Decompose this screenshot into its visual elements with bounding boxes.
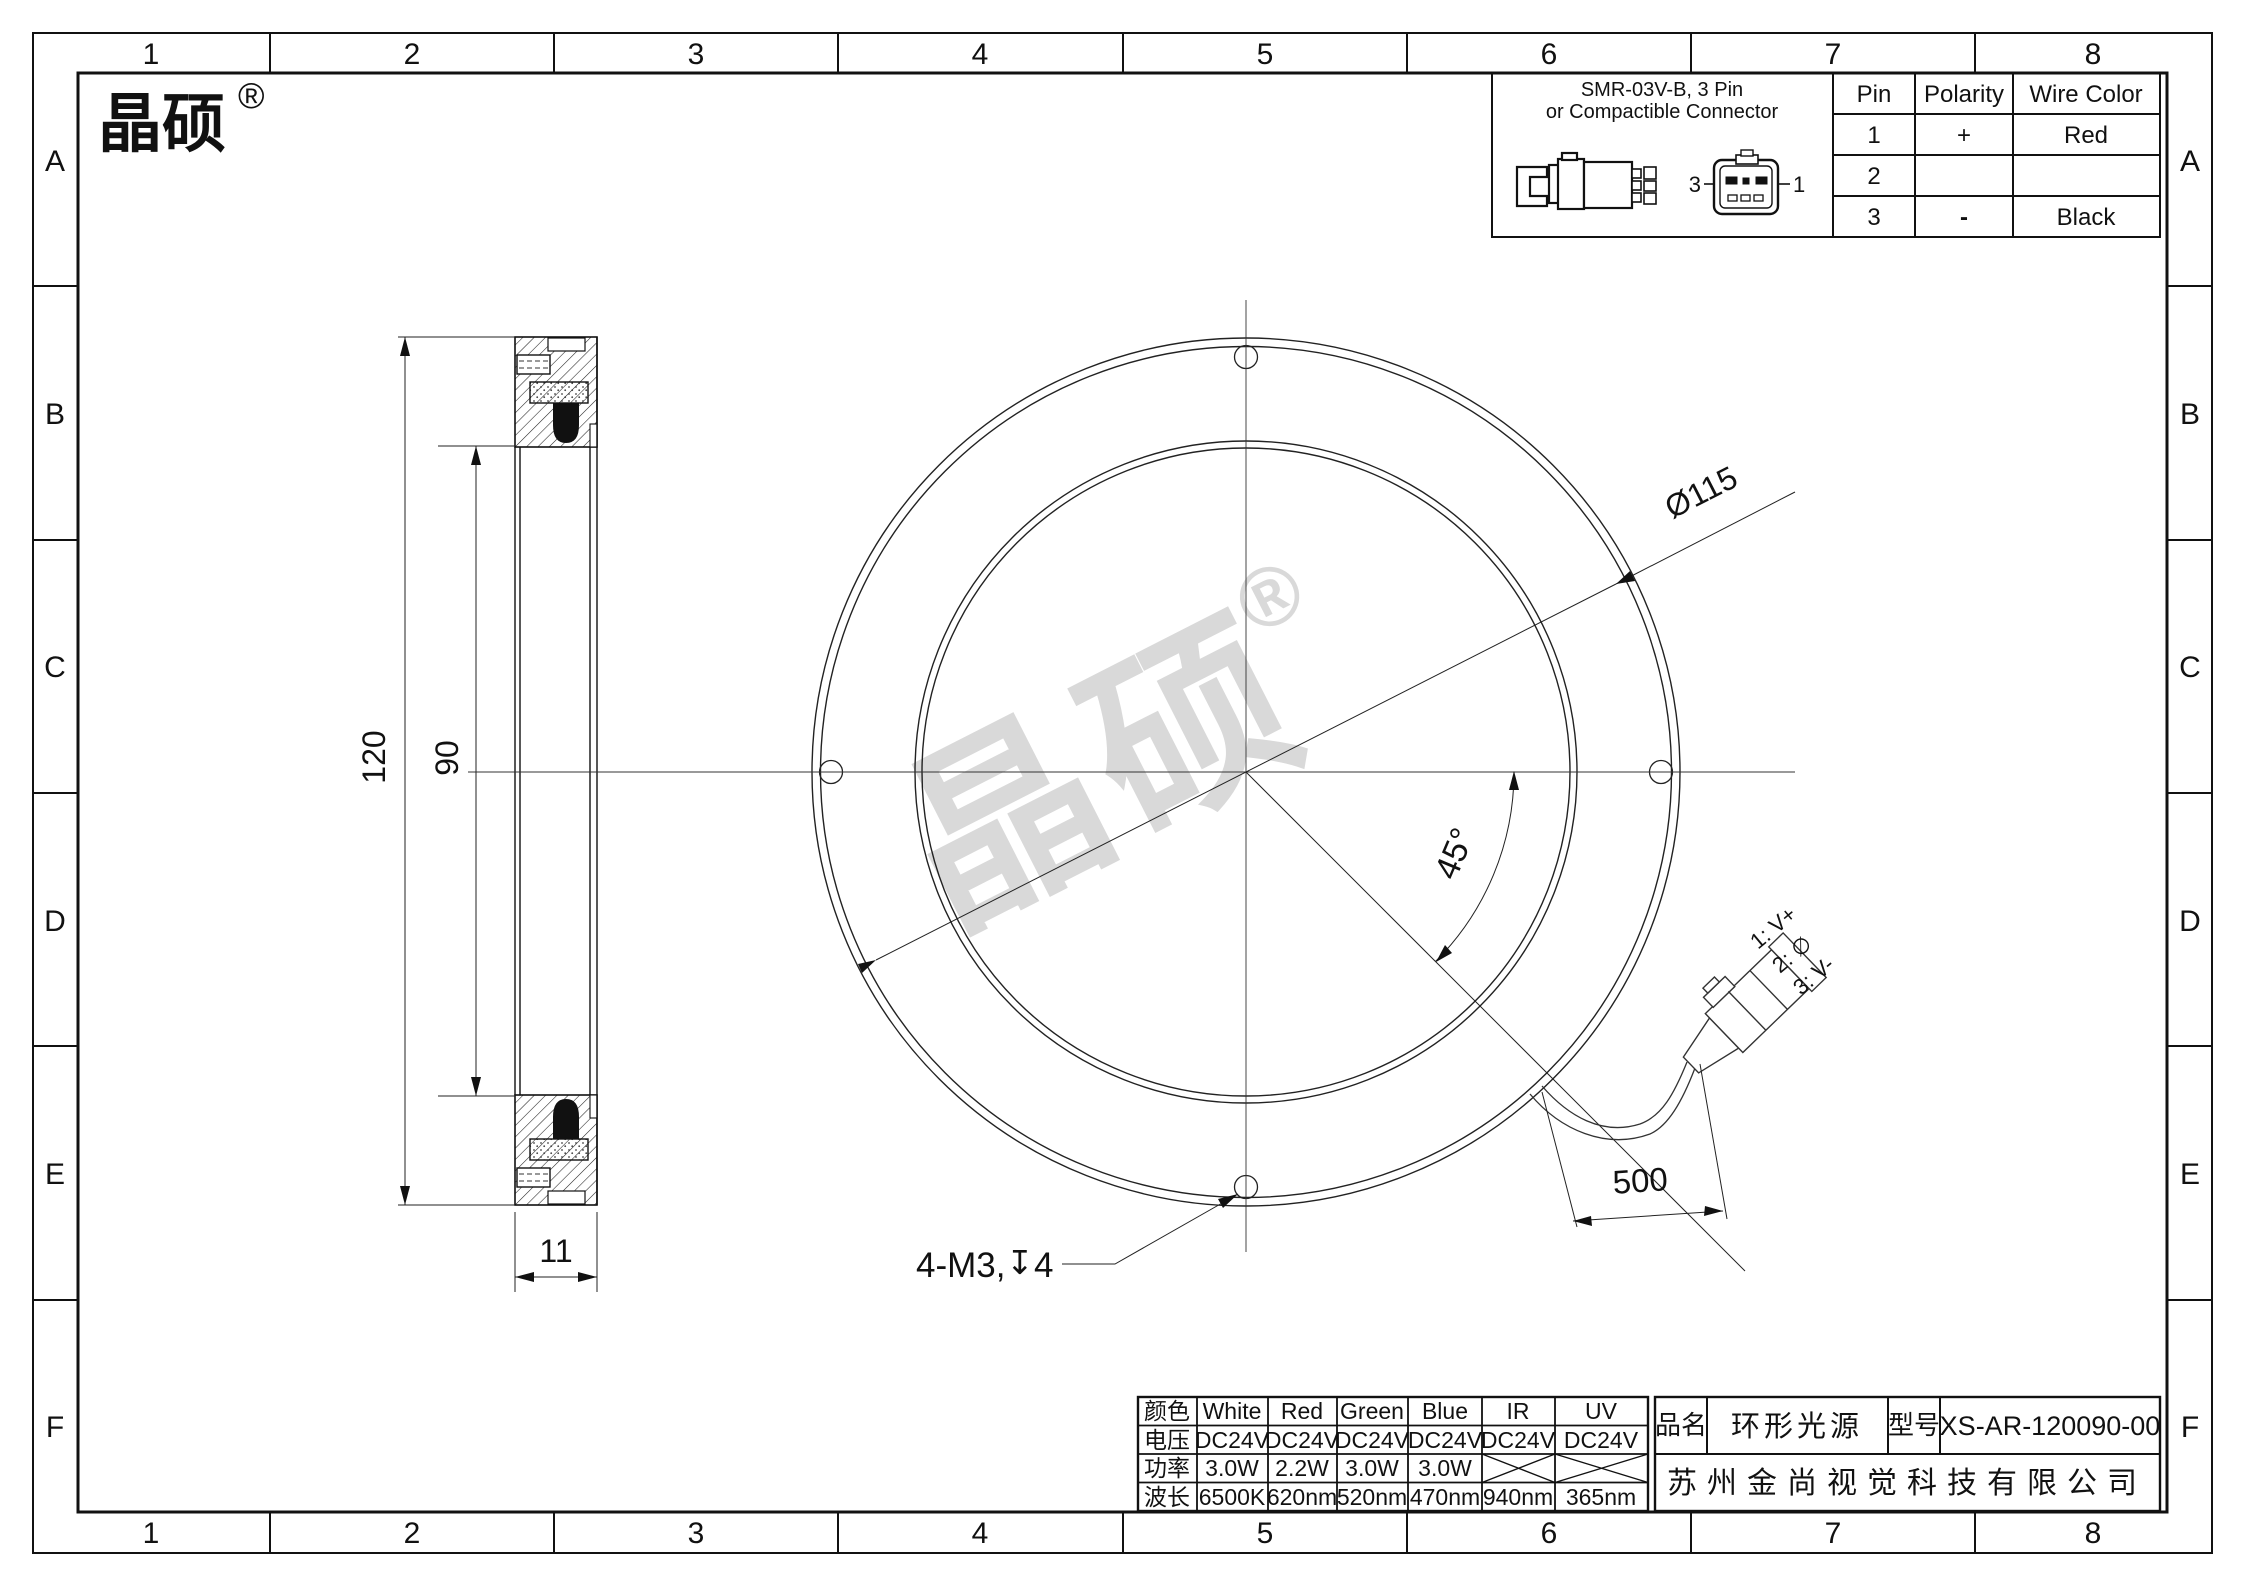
connector-panel: SMR-03V-B, 3 Pin or Compactible Connecto… bbox=[1492, 73, 2160, 237]
spec-cell: Red bbox=[1281, 1398, 1323, 1424]
grid-col-label: 3 bbox=[688, 1517, 705, 1550]
grid-col-label: 4 bbox=[972, 38, 989, 71]
spec-cell: 470nm bbox=[1410, 1484, 1480, 1510]
spec-row-label: 颜色 bbox=[1144, 1398, 1190, 1424]
spec-cell: 6500K bbox=[1199, 1484, 1266, 1510]
pin-table-cell: + bbox=[1957, 122, 1971, 149]
spec-cell: Green bbox=[1340, 1398, 1404, 1424]
grid-row-label: C bbox=[44, 651, 66, 684]
pin-table-cell: Black bbox=[2057, 204, 2117, 231]
spec-cell: Blue bbox=[1422, 1398, 1468, 1424]
dimension-500: 500 bbox=[1542, 1064, 1727, 1227]
dim-thickness: 11 bbox=[539, 1233, 572, 1269]
spec-cell: DC24V bbox=[1265, 1427, 1340, 1453]
spec-cell: 520nm bbox=[1337, 1484, 1407, 1510]
spec-cell: 3.0W bbox=[1205, 1455, 1259, 1481]
spec-cell: IR bbox=[1507, 1398, 1530, 1424]
dimension-11: 11 bbox=[515, 1212, 597, 1292]
dim-cable-length: 500 bbox=[1611, 1160, 1669, 1201]
front-view-pin1-label: 1 bbox=[1793, 172, 1805, 197]
grid-col-label: 5 bbox=[1257, 38, 1274, 71]
spec-table: 颜色 电压 功率 波长 White Red Green Blue IR UV D… bbox=[1138, 1397, 1648, 1511]
product-name: 环形光源 bbox=[1731, 1410, 1863, 1443]
dimension-mounting-holes: 4-M3, ↧ 4 bbox=[916, 1194, 1238, 1285]
dim-angle: 45° bbox=[1427, 823, 1482, 885]
dimension-angle-45: 45° bbox=[1246, 771, 1745, 1271]
grid-col-label: 2 bbox=[404, 38, 421, 71]
pin-table-cell: 1 bbox=[1867, 122, 1880, 149]
grid-col-label: 2 bbox=[404, 1517, 421, 1550]
grid-row-label: B bbox=[45, 398, 65, 431]
grid-col-label: 8 bbox=[2085, 38, 2102, 71]
grid-col-label: 4 bbox=[972, 1517, 989, 1550]
grid-row-label: E bbox=[45, 1158, 65, 1191]
pin-table-header: Pin bbox=[1857, 81, 1892, 108]
grid-col-label: 5 bbox=[1257, 1517, 1274, 1550]
spec-cell: 2.2W bbox=[1275, 1455, 1329, 1481]
pin-table-cell: 3 bbox=[1867, 204, 1880, 231]
pin-table-cell: - bbox=[1960, 204, 1968, 231]
dim-outer-diameter: 120 bbox=[356, 730, 392, 783]
spec-cell: 3.0W bbox=[1345, 1455, 1399, 1481]
grid-row-label: D bbox=[44, 905, 66, 938]
spec-cell: DC24V bbox=[1195, 1427, 1270, 1453]
watermark: 晶硕 ® bbox=[859, 541, 1384, 965]
thread-callout: 4-M3, bbox=[916, 1246, 1005, 1285]
crossed-cell-marks bbox=[1482, 1454, 1648, 1483]
pin-table-cell: 2 bbox=[1867, 163, 1880, 190]
title-block: 品名 环形光源 型号 XS-AR-120090-00 苏州金尚视觉科技有限公司 bbox=[1655, 1397, 2160, 1511]
brand-logo-text: 晶硕 bbox=[98, 88, 226, 160]
diffuser-section bbox=[530, 382, 588, 403]
section-bottom-block bbox=[515, 1095, 597, 1205]
pin-table-header: Polarity bbox=[1924, 81, 2004, 108]
front-view-pin3-label: 3 bbox=[1689, 172, 1701, 197]
spec-row-label: 电压 bbox=[1144, 1427, 1190, 1453]
pin-table-header: Wire Color bbox=[2029, 81, 2142, 108]
spec-row-label: 功率 bbox=[1144, 1455, 1190, 1481]
grid-row-label: E bbox=[2180, 1158, 2200, 1191]
depth-symbol-icon: ↧ bbox=[1006, 1244, 1034, 1281]
connector-title-line2: or Compactible Connector bbox=[1546, 101, 1779, 123]
drawing-sheet: 晶硕 ® 1 2 3 4 5 6 7 8 1 2 3 4 5 6 7 8 A B… bbox=[0, 0, 2245, 1587]
connector-side-view bbox=[1517, 153, 1656, 209]
section-view bbox=[515, 337, 597, 1205]
pcb-section bbox=[517, 355, 550, 374]
spec-cell: 3.0W bbox=[1418, 1455, 1472, 1481]
dimension-90: 90 bbox=[429, 446, 515, 1096]
connector-front-view bbox=[1714, 150, 1778, 214]
company-name: 苏州金尚视觉科技有限公司 bbox=[1667, 1467, 2147, 1500]
grid-col-label: 7 bbox=[1825, 38, 1842, 71]
section-body-edges bbox=[515, 337, 597, 1205]
dim-inner-diameter: 90 bbox=[429, 740, 465, 776]
pin-table-cell: Red bbox=[2064, 122, 2108, 149]
spec-cell: DC24V bbox=[1564, 1427, 1639, 1453]
dim-bolt-circle-diameter: Ø115 bbox=[1659, 459, 1743, 526]
brand-registered-icon: ® bbox=[238, 75, 265, 116]
product-name-label: 品名 bbox=[1655, 1410, 1707, 1440]
grid-col-label: 6 bbox=[1541, 38, 1558, 71]
spec-cell: DC24V bbox=[1335, 1427, 1410, 1453]
led-section bbox=[553, 1099, 579, 1139]
spec-cell: 620nm bbox=[1267, 1484, 1337, 1510]
model-number: XS-AR-120090-00 bbox=[1940, 1411, 2161, 1441]
led-section bbox=[553, 403, 579, 443]
spec-cell: UV bbox=[1585, 1398, 1618, 1424]
connector-title-line1: SMR-03V-B, 3 Pin bbox=[1581, 79, 1743, 101]
grid-col-label: 6 bbox=[1541, 1517, 1558, 1550]
section-top-block bbox=[515, 337, 597, 447]
spec-cell: 940nm bbox=[1483, 1484, 1553, 1510]
grid-col-label: 1 bbox=[143, 1517, 160, 1550]
spec-cell: White bbox=[1203, 1398, 1262, 1424]
grid-col-label: 3 bbox=[688, 38, 705, 71]
cable bbox=[1530, 1062, 1695, 1140]
grid-col-label: 7 bbox=[1825, 1517, 1842, 1550]
grid-row-label: F bbox=[46, 1411, 64, 1444]
model-label: 型号 bbox=[1888, 1410, 1940, 1440]
thread-depth-value: 4 bbox=[1034, 1246, 1053, 1285]
diffuser-section bbox=[530, 1139, 588, 1160]
pcb-section bbox=[517, 1168, 550, 1187]
brand-logo: 晶硕 ® bbox=[98, 75, 265, 160]
spec-cell: 365nm bbox=[1566, 1484, 1636, 1510]
grid-row-label: C bbox=[2179, 651, 2201, 684]
grid-row-label: F bbox=[2181, 1411, 2199, 1444]
engineering-drawing: 晶硕 ® 1 2 3 4 5 6 7 8 1 2 3 4 5 6 7 8 A B… bbox=[0, 0, 2245, 1587]
grid-row-label: B bbox=[2180, 398, 2200, 431]
grid-col-label: 1 bbox=[143, 38, 160, 71]
grid-row-label: A bbox=[45, 145, 65, 178]
grid-row-label: A bbox=[2180, 145, 2200, 178]
pin-table: Pin Polarity Wire Color 1 + Red 2 3 - Bl… bbox=[1833, 73, 2160, 237]
spec-row-label: 波长 bbox=[1144, 1484, 1190, 1510]
grid-col-label: 8 bbox=[2085, 1517, 2102, 1550]
spec-cell: DC24V bbox=[1481, 1427, 1556, 1453]
spec-cell: DC24V bbox=[1408, 1427, 1483, 1453]
grid-row-label: D bbox=[2179, 905, 2201, 938]
